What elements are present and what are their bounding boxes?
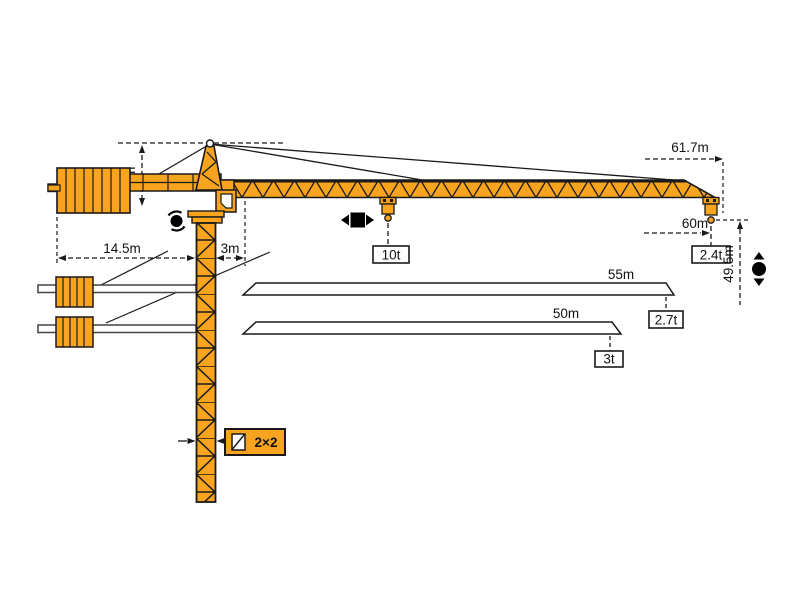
arrow-right-icon (187, 255, 195, 261)
tower-mast (197, 223, 216, 502)
jib (219, 180, 715, 198)
pendant-lines (147, 144, 687, 182)
pendant-right-1 (210, 144, 434, 182)
slewing-plate-upper (188, 211, 224, 217)
jib-length-label: 50m (553, 306, 579, 321)
rotation-icon (169, 211, 185, 230)
central-ballast-upper (38, 277, 196, 307)
crane-diagram-svg: 7m 14.5m 3m (0, 0, 800, 600)
ballast-block (56, 277, 93, 307)
trolley-wheel-icon (713, 199, 716, 202)
tower-head (196, 140, 222, 190)
max-capacity-label: 10t (382, 248, 401, 263)
trolley-plate (703, 198, 719, 205)
tie-bar-end (48, 185, 60, 191)
jib-lattice (221, 180, 715, 198)
jib-profile (243, 283, 674, 295)
trolley-mid: 10t (373, 198, 409, 264)
mast-section-label: 2×2 (255, 435, 278, 450)
mast-section-callout: 2×2 (178, 429, 285, 455)
ballast-block (56, 317, 93, 347)
apex-pin (207, 140, 214, 147)
central-ballast-lower (38, 317, 196, 347)
jib-profile (243, 322, 621, 334)
dim-counter-radius-label: 14.5m (103, 241, 141, 256)
arrow-right-icon (188, 438, 196, 444)
arrow-up-icon (139, 145, 145, 153)
dim-max-radius-label: 61.7m (671, 140, 709, 155)
hoist-icon (752, 252, 766, 286)
hook-block (382, 204, 394, 214)
hook-block (705, 204, 717, 215)
arrow-up-icon (737, 221, 743, 229)
tip-capacity-label: 3t (603, 352, 615, 367)
dim-root-offset-label: 3m (221, 241, 240, 256)
tip-capacity-label: 2.7t (655, 313, 678, 328)
dim-hook-radius-label: 60m (682, 216, 708, 231)
mast-lattice (197, 223, 216, 502)
trolley-wheel-icon (383, 199, 386, 202)
arrow-down-icon (139, 198, 145, 206)
dim-hook-height-label: 49.5m (721, 245, 736, 283)
hook (708, 217, 714, 223)
trolley-plate (380, 198, 396, 205)
tip-capacity-label: 2.4t (700, 248, 723, 263)
crane-diagram: 7m 14.5m 3m (0, 0, 800, 600)
arrow-left-icon (58, 255, 66, 261)
hook (385, 215, 391, 221)
dim-hook-height: 49.5m (716, 220, 748, 305)
trolley-wheel-icon (706, 199, 709, 202)
trolley-travel-icon (341, 213, 374, 228)
pendant-right-2 (210, 144, 687, 181)
arrow-right-icon (715, 156, 723, 162)
counter-jib (48, 168, 221, 213)
cab (188, 190, 236, 223)
dim-hook-radius: 60m (644, 216, 710, 236)
arrow-left-icon (217, 438, 225, 444)
jib-variant-50m: 50m 3t (243, 306, 623, 367)
jib-length-label: 55m (608, 267, 634, 282)
jib-variant-55m: 55m 2.7t (243, 267, 683, 328)
leader-line-1 (101, 251, 168, 285)
trolley-wheel-icon (390, 199, 393, 202)
